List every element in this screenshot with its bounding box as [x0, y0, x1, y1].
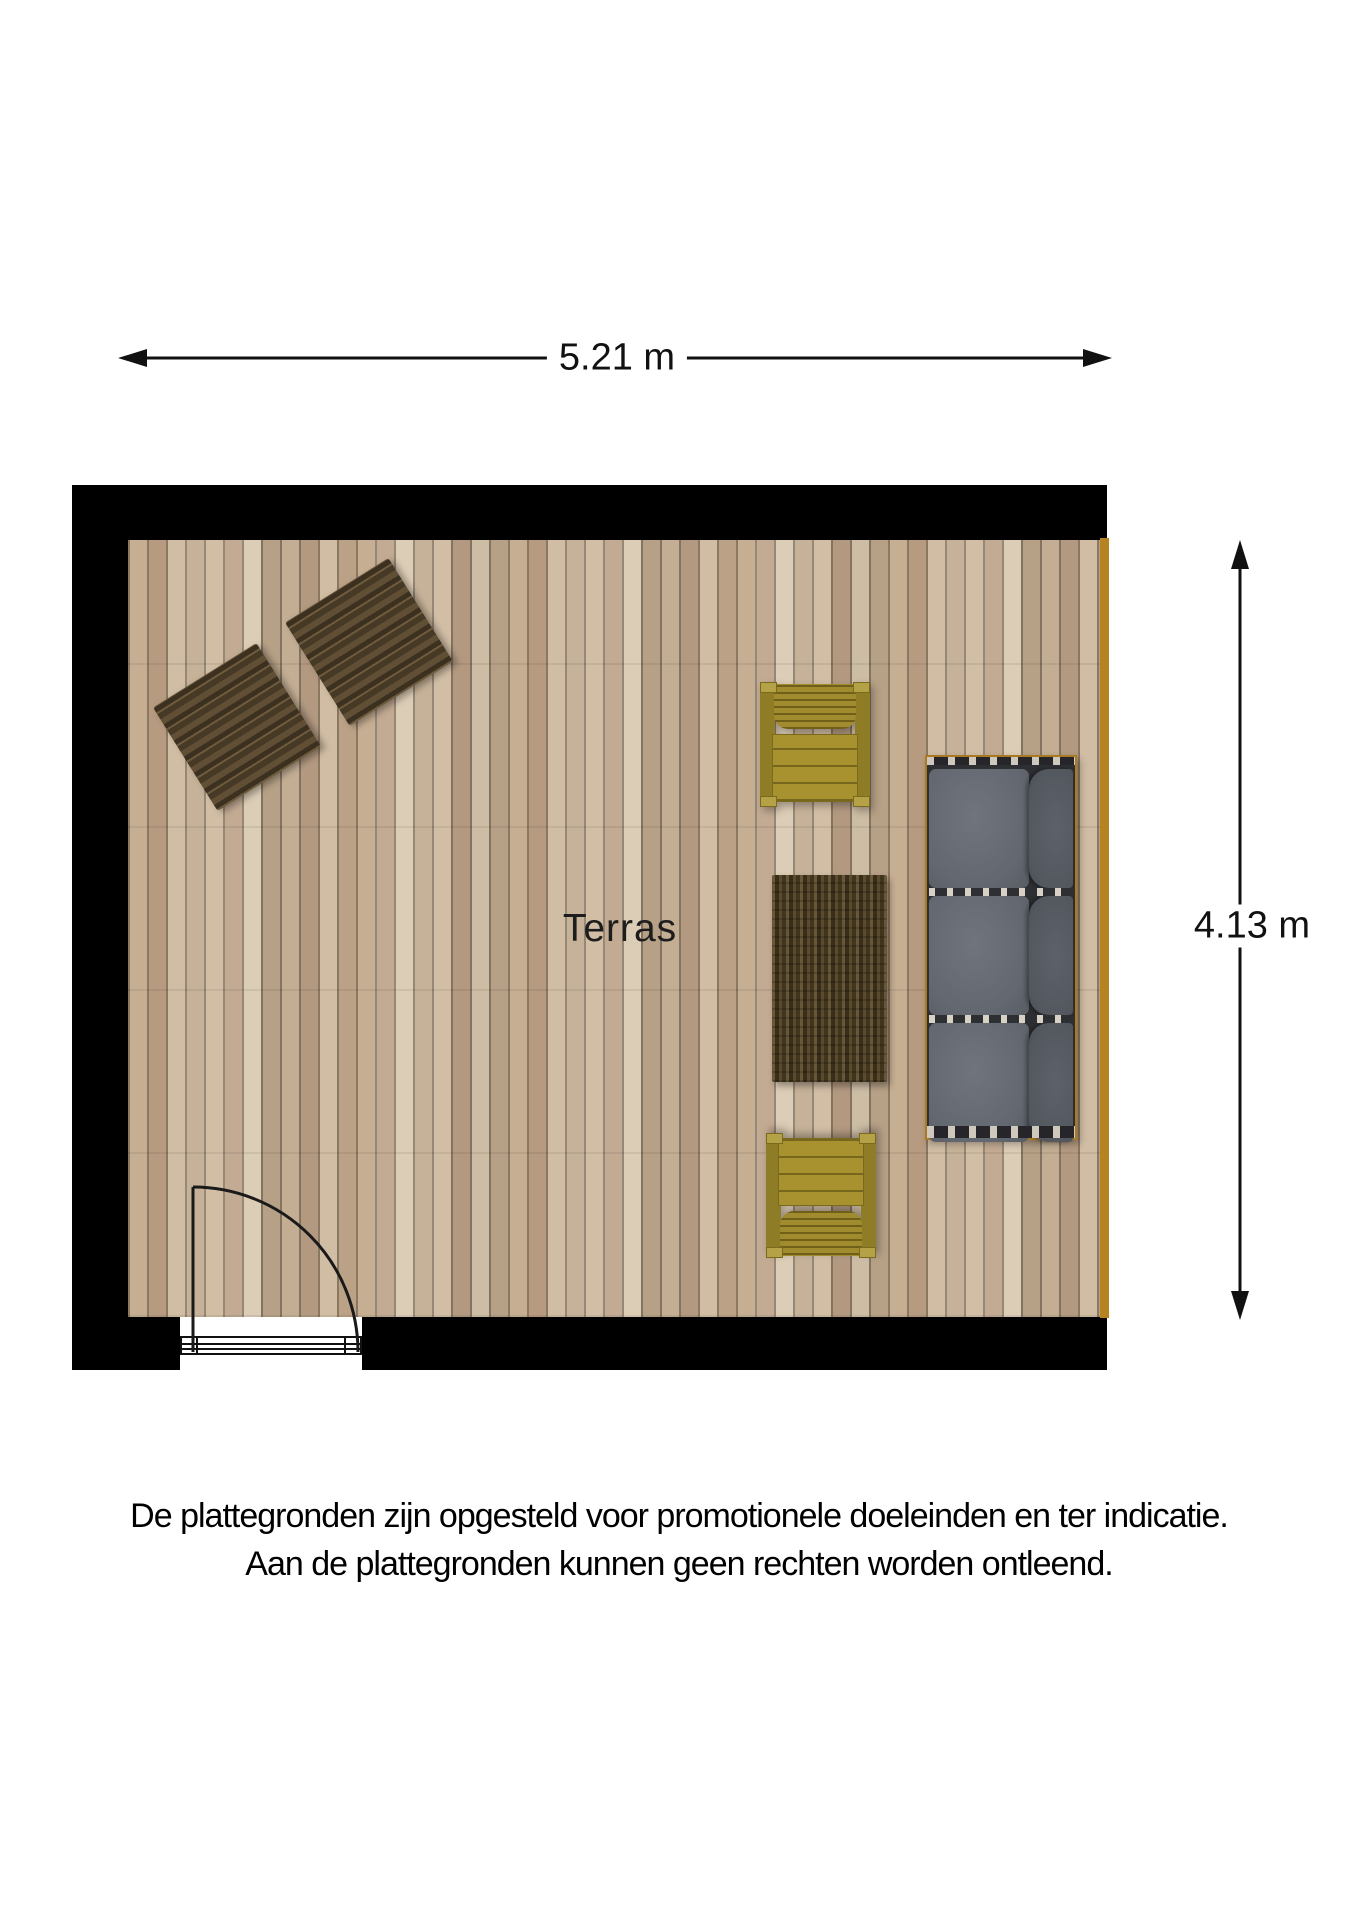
chair-post	[853, 682, 870, 693]
sofa-seat-cushion	[929, 896, 1029, 1015]
wall-left	[72, 485, 128, 1370]
threshold-line	[182, 1343, 360, 1345]
sofa-back-cushion	[1029, 769, 1073, 888]
arrowhead-down-icon	[1231, 1291, 1249, 1320]
arrowhead-left-icon	[118, 349, 147, 367]
dimension-label-height: 4.13 m	[1182, 905, 1322, 948]
chair-post	[859, 1247, 876, 1258]
chair-post	[760, 682, 777, 693]
armchair-bottom	[766, 1133, 876, 1258]
chair-post	[766, 1133, 783, 1144]
sofa-three-seats	[925, 755, 1077, 1140]
deck-edge-strip	[1100, 538, 1109, 1318]
chair-post	[853, 796, 870, 807]
room-label: Terras	[563, 907, 677, 951]
arrowhead-up-icon	[1231, 540, 1249, 569]
disclaimer-line-1: De plattegronden zijn opgesteld voor pro…	[0, 1492, 1358, 1540]
door-threshold	[180, 1336, 362, 1355]
chair-post	[760, 796, 777, 807]
sofa-cushion-gap	[929, 888, 1073, 896]
arrowhead-right-icon	[1083, 349, 1112, 367]
threshold-line	[182, 1348, 360, 1350]
chair-backrest	[774, 684, 856, 729]
coffee-table	[772, 875, 887, 1082]
chair-post	[766, 1247, 783, 1258]
wall-bottom-right	[362, 1317, 1107, 1370]
chair-seat	[772, 734, 858, 802]
floor-plan-page: 5.21 m 4.13 m Terras De plattegronden zi…	[0, 0, 1358, 1920]
disclaimer-text: De plattegronden zijn opgesteld voor pro…	[0, 1492, 1358, 1588]
sofa-seat-cushion	[929, 769, 1029, 888]
sofa-frame-rail	[927, 757, 1075, 765]
door-jamb	[344, 1338, 346, 1353]
sofa-frame-rail	[927, 1126, 1075, 1138]
dimension-label-width: 5.21 m	[547, 337, 687, 380]
wall-top	[72, 485, 1107, 540]
sofa-back-cushion	[1029, 896, 1073, 1015]
armchair-top	[760, 682, 870, 807]
chair-post	[859, 1133, 876, 1144]
disclaimer-line-2: Aan de plattegronden kunnen geen rechten…	[0, 1540, 1358, 1588]
sofa-back-cushion	[1029, 1023, 1073, 1142]
sofa-cushion-gap	[929, 1015, 1073, 1023]
wall-bottom-left	[72, 1317, 180, 1370]
door-jamb	[196, 1338, 198, 1353]
chair-seat	[778, 1138, 864, 1206]
sofa-seat-cushion	[929, 1023, 1029, 1142]
chair-backrest	[780, 1211, 862, 1256]
